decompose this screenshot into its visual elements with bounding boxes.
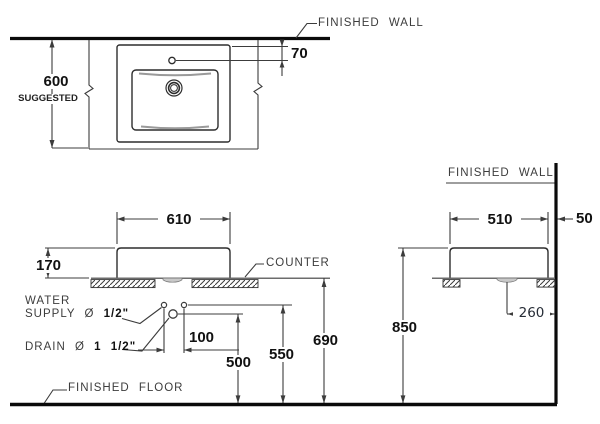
dim-600: 600 xyxy=(36,74,76,89)
dim-260: 260 xyxy=(513,307,550,321)
dim-170: 170 xyxy=(29,258,68,273)
suggested-label: SUGGESTED xyxy=(17,94,79,104)
drain-prefix: DRAIN Ø xyxy=(25,341,94,353)
side-view-right xyxy=(398,163,573,404)
dim-690: 690 xyxy=(306,333,345,348)
dim-610: 610 xyxy=(158,212,200,227)
water-supply-point-a xyxy=(161,302,166,307)
counter-left-edge xyxy=(85,40,93,149)
finished-wall-top-label: FINISHED WALL xyxy=(318,17,424,30)
sink-body-right xyxy=(450,248,548,278)
counter-label: COUNTER xyxy=(266,257,330,270)
dim-510: 510 xyxy=(479,212,521,227)
water-supply-size: 1/2" xyxy=(104,308,129,320)
water-supply-label-line2: SUPPLY Ø 1/2" xyxy=(25,308,129,321)
water-supply-label-line1: WATER xyxy=(25,295,70,308)
drain-flange-right xyxy=(497,278,517,282)
overflow-hole xyxy=(166,80,182,96)
counter-leader xyxy=(245,264,264,277)
basin-outline-plan xyxy=(132,70,218,130)
counter-slab-right-a xyxy=(443,280,460,288)
water-supply-prefix: SUPPLY Ø xyxy=(25,308,104,320)
dim-70-lines xyxy=(280,40,285,77)
counter-right-edge xyxy=(254,40,262,149)
finished-wall-right-label: FINISHED WALL xyxy=(448,167,554,180)
technical-drawing-canvas: FINISHED WALL 70 600 SUGGESTED 610 170 C… xyxy=(0,0,600,424)
drain-point xyxy=(169,310,177,318)
basin-shade-top xyxy=(139,74,211,76)
water-supply-point-b xyxy=(181,302,186,307)
dim-50: 50 xyxy=(576,211,593,226)
basin-shade-bottom xyxy=(141,127,209,129)
drain-size: 1 1/2" xyxy=(94,341,136,353)
dim-100: 100 xyxy=(189,330,214,345)
counter-slab-left-a xyxy=(91,280,155,288)
sink-body-left xyxy=(117,248,230,278)
finished-floor-label: FINISHED FLOOR xyxy=(68,382,183,395)
dim-850: 850 xyxy=(385,320,424,335)
dim-50-lines xyxy=(558,217,574,222)
counter-slab-left-b xyxy=(192,280,258,288)
counter-slab-right-b xyxy=(537,280,555,288)
faucet-hole xyxy=(169,57,175,63)
dim-550: 550 xyxy=(262,347,301,362)
dim-70: 70 xyxy=(291,46,308,61)
drain-flange-left xyxy=(163,278,182,282)
finished-floor-leader xyxy=(44,390,67,404)
drain-label: DRAIN Ø 1 1/2" xyxy=(25,341,136,354)
dim-500: 500 xyxy=(219,355,258,370)
finished-wall-top-leader xyxy=(296,24,317,39)
